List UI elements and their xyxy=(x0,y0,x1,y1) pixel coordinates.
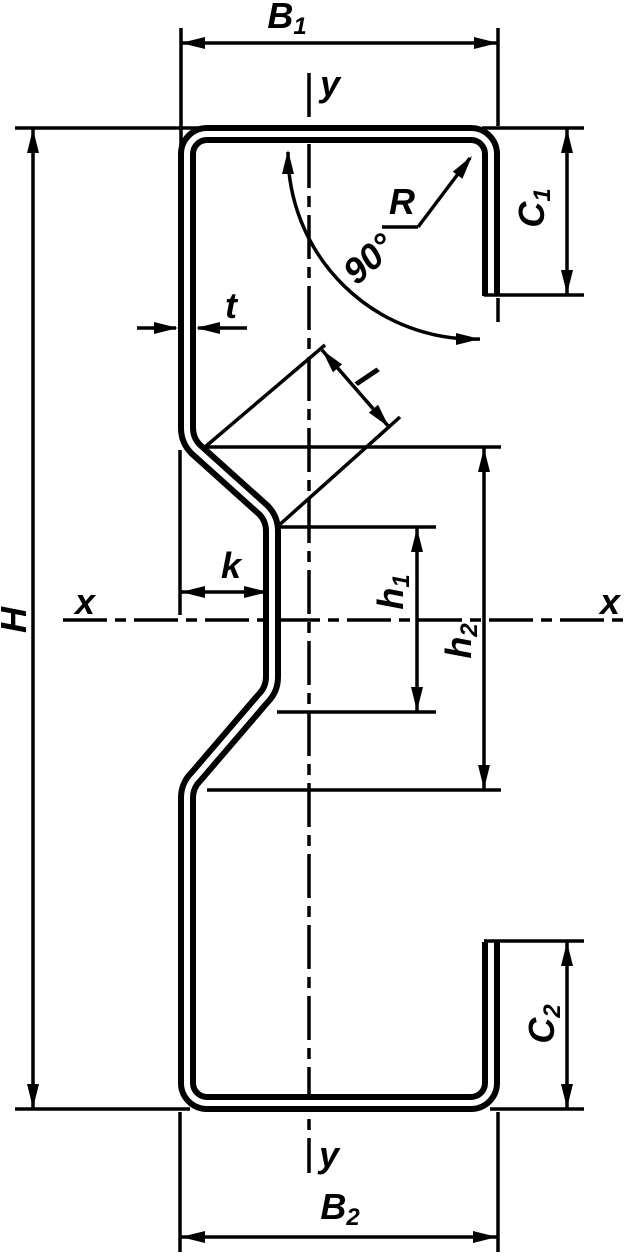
label-radius: R xyxy=(389,184,415,220)
arrowhead xyxy=(181,586,205,598)
arrowhead xyxy=(154,322,178,334)
label-h1: h1 xyxy=(373,574,409,609)
label-thickness-t: t xyxy=(225,288,237,324)
bend-tangent-lower xyxy=(277,417,400,527)
label-b1: B1 xyxy=(267,0,306,34)
arrowhead xyxy=(561,1084,573,1108)
label-k: k xyxy=(221,548,241,584)
arrowhead xyxy=(411,528,423,552)
diagram-canvas: B1 y R 90° C1 t l k x x H h1 h2 C2 y B2 xyxy=(0,0,630,1256)
label-height-h: H xyxy=(0,607,32,633)
arrowhead xyxy=(181,1231,205,1243)
arrowhead xyxy=(282,150,294,174)
arrowhead xyxy=(196,322,220,334)
arrowhead xyxy=(478,765,490,789)
arrowhead xyxy=(474,37,498,49)
label-y-axis-top: y xyxy=(320,66,340,102)
arrowhead xyxy=(27,129,39,153)
arrowhead xyxy=(411,687,423,711)
label-c1: C1 xyxy=(514,188,550,227)
label-x-axis-right: x xyxy=(600,584,620,620)
arrowhead xyxy=(181,37,205,49)
label-y-axis-bottom: y xyxy=(319,1137,339,1173)
arrowhead xyxy=(456,333,480,345)
arrowhead xyxy=(27,1084,39,1108)
arrowhead xyxy=(478,448,490,472)
arrowhead xyxy=(561,942,573,966)
label-h2: h2 xyxy=(441,623,477,658)
label-x-axis-left: x xyxy=(75,584,95,620)
arrowhead xyxy=(561,270,573,294)
label-b2: B2 xyxy=(320,1189,359,1225)
arrowhead xyxy=(473,1231,497,1243)
bend-tangent-upper xyxy=(205,345,325,447)
label-c2: C2 xyxy=(524,1004,560,1043)
arrowhead xyxy=(561,129,573,153)
